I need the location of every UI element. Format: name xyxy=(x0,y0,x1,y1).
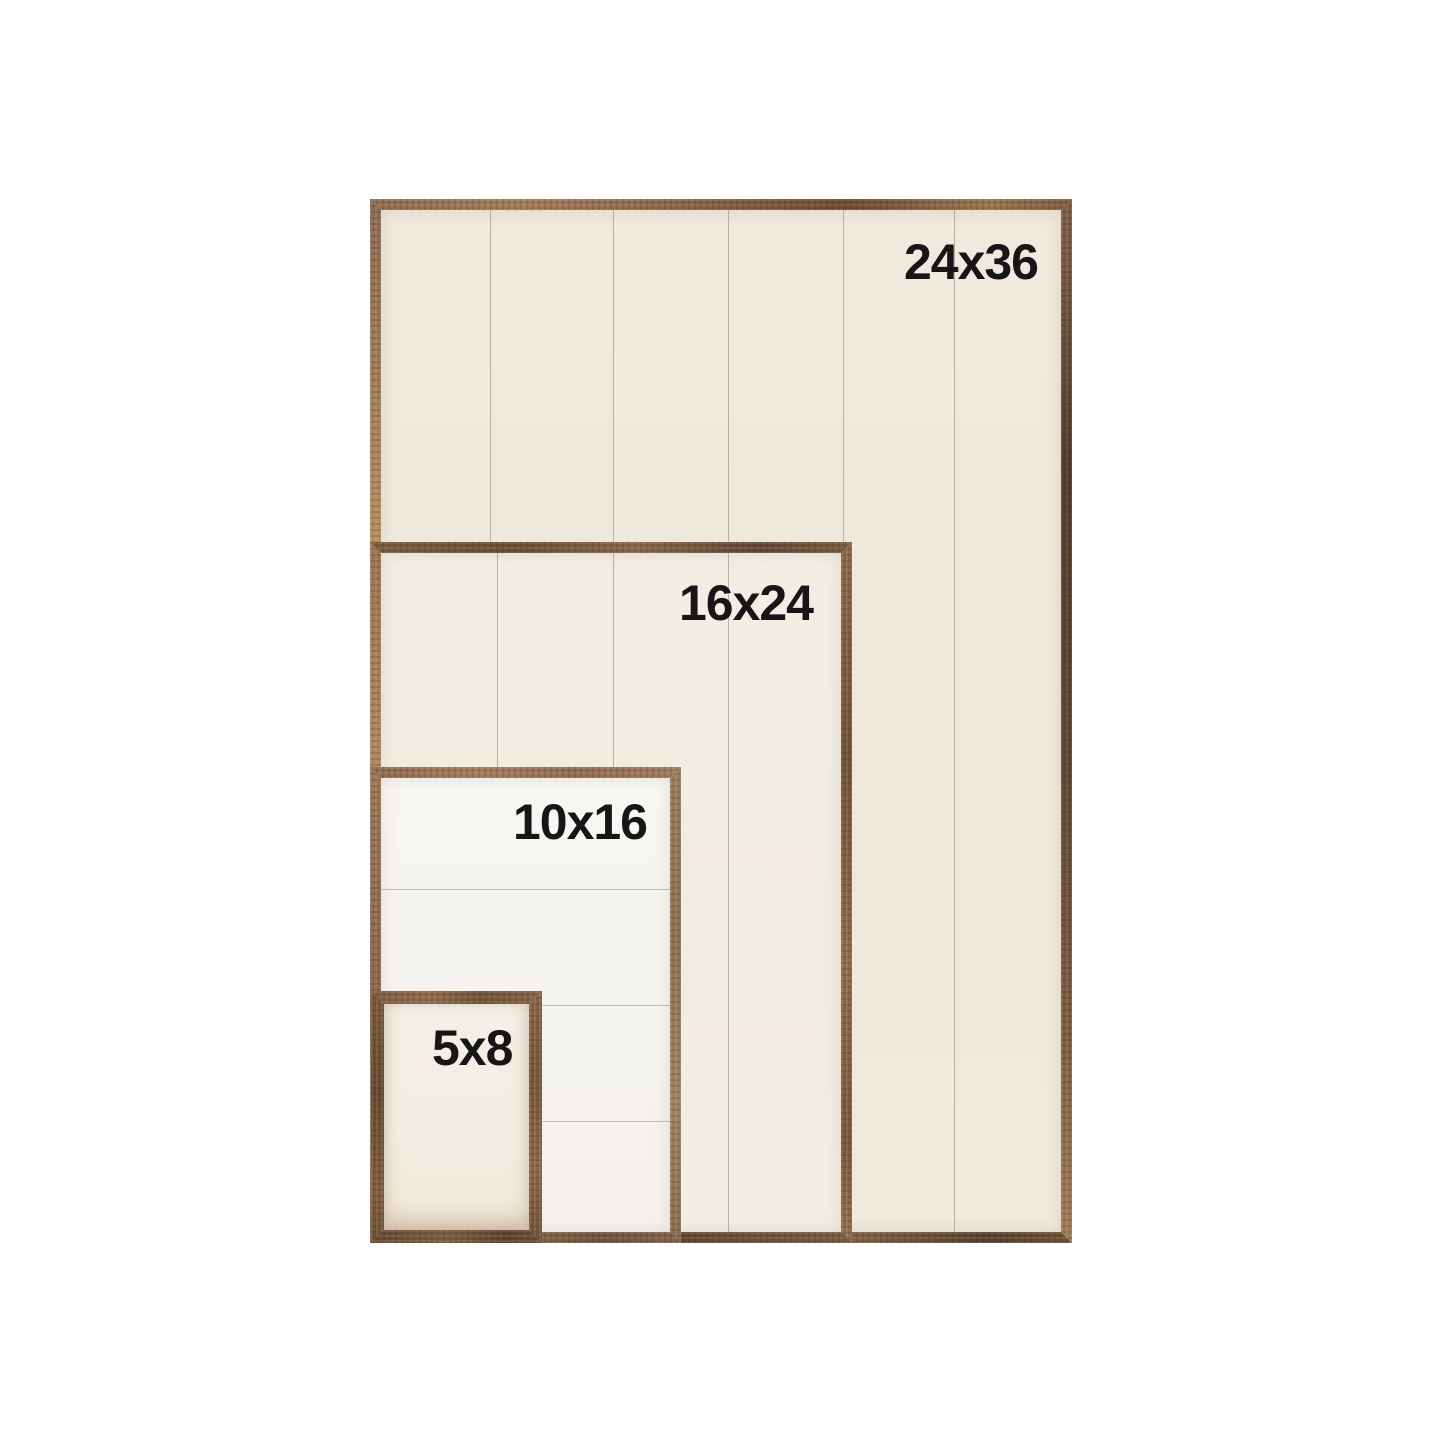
size-label-24x36: 24x36 xyxy=(904,237,1038,287)
size-comparison-image: 24x36 16x24 10x16 5x8 xyxy=(0,0,1445,1445)
frame-edge-left xyxy=(371,991,384,1243)
frame-edge-right xyxy=(841,542,852,1243)
frame-edge-top xyxy=(370,542,852,553)
size-label-10x16: 10x16 xyxy=(513,797,647,847)
size-label-16x24: 16x24 xyxy=(679,578,813,628)
frame-edge-right xyxy=(1061,199,1072,1243)
frame-edge-right xyxy=(529,991,542,1243)
plank-seam xyxy=(728,553,729,1232)
frame-5x8: 5x8 xyxy=(371,991,542,1243)
frame-edge-top xyxy=(370,199,1072,210)
frame-edge-right xyxy=(670,767,681,1243)
frame-edge-top xyxy=(370,767,681,778)
frame-edge-top xyxy=(371,991,542,1004)
plank-seam xyxy=(954,210,955,1232)
size-label-5x8: 5x8 xyxy=(432,1023,512,1073)
frame-edge-bottom xyxy=(371,1230,542,1243)
plank-seam xyxy=(381,889,670,890)
